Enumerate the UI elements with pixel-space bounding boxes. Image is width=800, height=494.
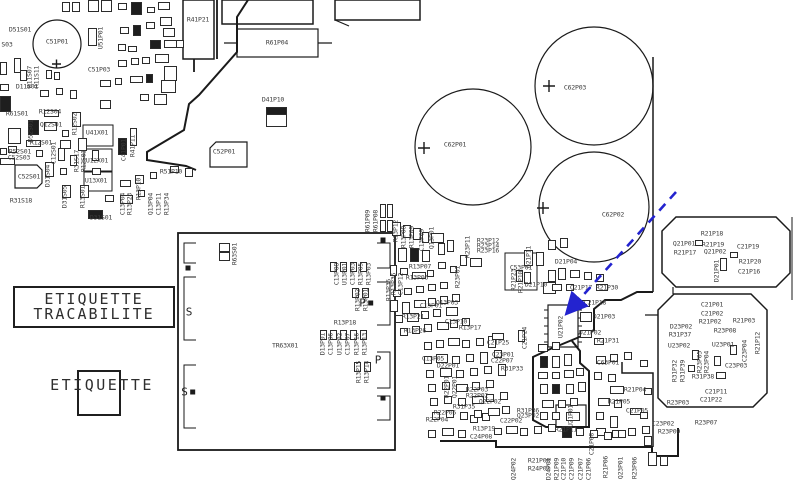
pointer-arrow xyxy=(568,192,676,312)
annotation-arrow-layer xyxy=(0,0,800,494)
pcb-assembly-drawing: D51S01C51P01U51P01C51P03S03R11S07R11S11D… xyxy=(0,0,800,494)
